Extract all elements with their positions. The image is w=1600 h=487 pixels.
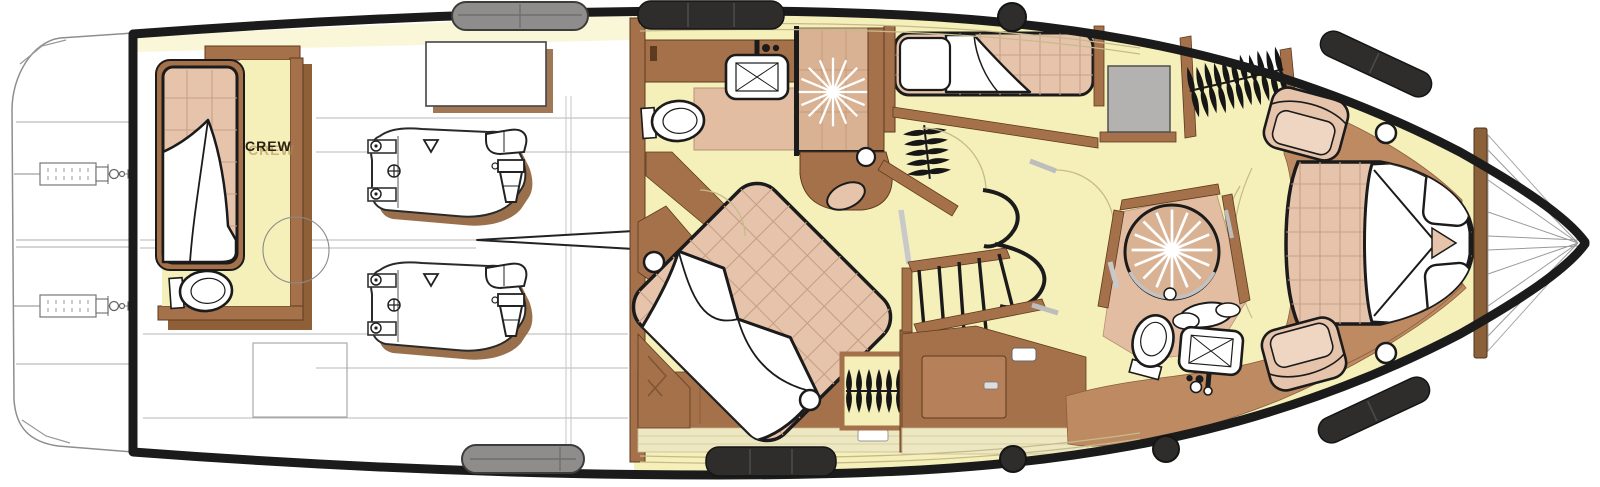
cabinet-strip — [902, 428, 1088, 454]
vanity-stool — [857, 148, 875, 166]
anchor-locker — [1488, 135, 1585, 351]
porthole-icon — [1376, 343, 1396, 363]
yacht-lower-deck-plan: CREW CREW — [0, 0, 1600, 487]
muffler-box — [426, 42, 546, 106]
porthole-icon — [644, 252, 664, 272]
pillow — [900, 38, 950, 90]
cabinet-handle — [984, 382, 998, 389]
crew-wall-right — [290, 58, 303, 320]
shower-stall — [794, 26, 884, 156]
crew-cabin: CREW CREW — [156, 46, 329, 330]
aft-deck — [12, 33, 140, 452]
engine-icon — [368, 128, 532, 225]
porthole-icon — [800, 390, 820, 410]
single-bed — [895, 33, 1093, 95]
swim-platform — [12, 33, 133, 452]
counter-handle — [650, 46, 657, 61]
crew-bed — [156, 60, 244, 270]
fender-icon — [706, 447, 836, 476]
shower-spray-icon — [799, 58, 867, 126]
floor-plan-canvas: CREW CREW — [0, 0, 1600, 487]
soap-dish — [1191, 382, 1202, 393]
fender-icon — [1316, 27, 1436, 101]
crew-wall-top — [205, 46, 300, 60]
drawer — [858, 430, 888, 441]
desk-shelf — [1100, 132, 1176, 142]
crew-label: CREW — [245, 138, 292, 154]
soap-dish — [1204, 387, 1212, 395]
drawer — [1012, 348, 1036, 361]
round-shower — [1125, 205, 1219, 300]
wall-plank — [902, 268, 912, 332]
desk — [1108, 66, 1170, 132]
cleat-icon — [998, 3, 1026, 31]
towels — [1216, 303, 1240, 317]
wardrobe — [842, 354, 906, 428]
cleat-icon — [1153, 436, 1179, 462]
shower-spray-icon — [1132, 210, 1213, 291]
fender-icon — [638, 1, 784, 29]
engine-icon — [368, 262, 532, 359]
cleat-icon — [1000, 446, 1026, 472]
porthole-icon — [1376, 123, 1396, 143]
